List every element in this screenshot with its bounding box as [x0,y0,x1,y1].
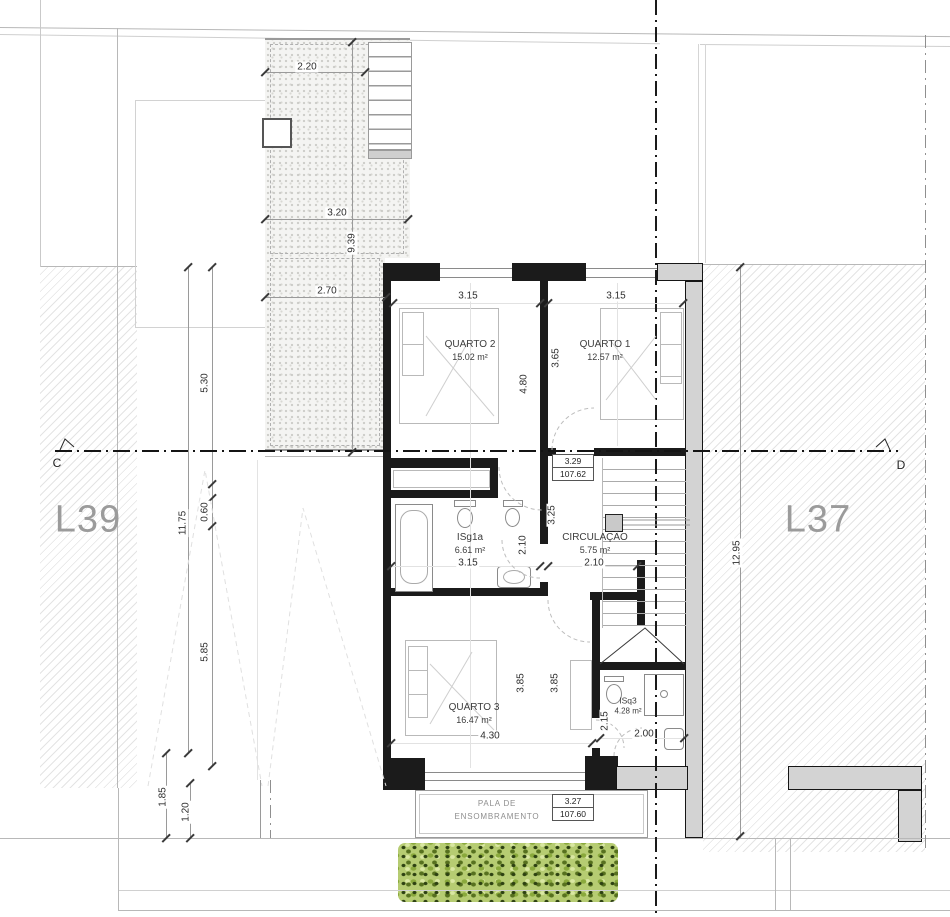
room-name: ISg1a [455,532,486,545]
dim-q1-height: 3.65 [551,346,562,369]
dim-q2-width: 3.15 [456,291,479,302]
level-value: 3.29 [553,455,593,468]
toilet-tank [454,500,476,507]
window-quarto1 [586,268,657,278]
sink-basin [503,570,525,584]
room-label-isq3: ISq3 4.28 m² [614,696,641,717]
dim-court-top: 2.20 [295,62,318,73]
bed-quarto2-pillows [402,312,424,376]
staircase-newel [605,514,623,532]
room-name: QUARTO 2 [445,339,496,352]
dim-q3-h2: 3.85 [550,671,561,694]
room-area: 15.02 m² [445,352,496,363]
dim-q3-h1: 3.85 [516,671,527,694]
wall-right-concrete [685,281,703,838]
neighbor-wall-horizontal [788,766,922,790]
dim-left-e: 1.20 [181,800,192,823]
section-marker-c: C [53,456,62,470]
dim-line [265,297,386,298]
pala-line2: ENSOMBRAMENTO [455,811,540,824]
hedge-vegetation [398,843,618,902]
window-quarto3 [425,772,585,781]
dim-line [548,303,683,304]
room-name: QUARTO 3 [449,702,500,715]
site-boundary-line [700,44,950,47]
right-boundary-centerline [925,35,926,852]
dim-line [617,283,618,446]
lot-l37-top-edge [703,264,925,265]
room-label-circulacao: CIRCULAÇÃO 5.75 m² [562,532,628,556]
room-name: ISq3 [614,696,641,707]
neighbor-wall-vertical [898,790,922,842]
wall-bottom-concrete [616,766,688,790]
site-line [790,838,791,910]
site-line [118,890,950,891]
wall-top-corner-concrete [657,263,703,281]
bed-quarto3-pillows [408,646,428,718]
bidet-bowl [505,508,520,527]
site-line [40,0,41,267]
pala-label: PALA DE ENSOMBRAMENTO [455,798,540,824]
site-line [117,28,118,788]
room-name: QUARTO 1 [580,339,631,352]
site-line [705,44,706,263]
room-area: 12.57 m² [580,352,631,363]
dim-isg-height: 2.10 [518,533,529,556]
lot-l39-top-edge [40,266,137,267]
wall-q2-q1 [540,281,548,498]
wall-q2-closet-a [383,458,498,468]
room-label-quarto1: QUARTO 1 12.57 m² [580,339,631,363]
wall-isq3-top [598,662,686,670]
wall-top-pier-mid [512,263,586,281]
dim-q2-height: 4.80 [519,372,530,395]
exterior-stair [368,42,412,150]
window-quarto2 [440,268,512,278]
wall-bottom-pier-left [383,758,425,790]
bathtub-inner [400,510,428,584]
site-line [118,910,950,911]
dim-left-a: 5.30 [200,371,211,394]
courtyard-planter [262,118,292,148]
room-area: 6.61 m² [455,545,486,556]
closet-niche [393,470,490,488]
site-line [260,780,261,838]
site-dashed-line [270,780,271,838]
dim-left-d: 1.85 [158,785,169,808]
room-area: 16.47 m² [449,715,500,726]
dim-line [212,267,213,766]
dim-court-mid: 3.20 [325,208,348,219]
site-line [118,788,119,910]
exterior-stair-landing [368,150,412,159]
wall-isg-top [391,490,490,498]
dim-isq3-height: 2.15 [600,709,611,732]
dim-line [265,219,408,220]
room-label-isg1a: ISg1a 6.61 m² [455,532,486,556]
dim-circ-width: 2.10 [582,558,605,569]
dim-line [391,743,592,744]
dim-q3-width: 4.30 [478,731,501,742]
site-line [257,460,258,780]
dim-hall-height: 3.25 [547,503,558,526]
level-value: 3.27 [553,795,593,808]
dim-left-total: 11.75 [178,509,189,537]
dim-right-total: 12.95 [732,538,743,567]
dim-court-low: 2.70 [315,286,338,297]
toilet-tank [604,676,624,682]
level-elevation: 107.62 [553,468,593,480]
site-line [775,838,776,910]
lot-label-l37: L37 [785,499,851,542]
wall-q3-right-b [592,748,600,772]
site-line [698,44,699,263]
level-elevation: 107.60 [553,808,593,820]
stair-direction-triangle [600,628,684,664]
room-name: CIRCULAÇÃO [562,532,628,545]
bed-quarto1-pillows [660,312,682,384]
wall-q2-closet-side [490,458,498,498]
pala-line1: PALA DE [455,798,540,811]
dim-left-c: 5.85 [200,640,211,663]
wall-top-pier-left [383,263,440,281]
section-marker-d: D [897,458,906,472]
lot-axis-centerline [655,0,657,917]
room-label-quarto2: QUARTO 2 15.02 m² [445,339,496,363]
dim-isg-width: 3.15 [456,558,479,569]
wall-bottom-pier-mid [585,756,618,790]
room-area: 4.28 m² [614,706,641,716]
lot-label-l39: L39 [55,499,121,542]
dim-line [393,303,540,304]
room-area: 5.75 m² [562,545,628,556]
desk-quarto3 [570,660,592,730]
site-line [0,838,950,839]
courtyard-low-wall-line [265,456,385,457]
shower-drain [660,690,668,698]
section-line-cd [55,450,898,452]
floor-plan-canvas: 2.20 3.20 9.39 2.70 5.30 11.75 0.60 5.85… [0,0,950,917]
dim-isq3-width: 2.00 [632,729,655,740]
bidet-tank [503,500,523,507]
dim-court-height: 9.39 [347,231,358,254]
wall-q3-right-a [592,596,600,718]
room-label-quarto3: QUARTO 3 16.47 m² [449,702,500,726]
wall-left [383,281,391,772]
dim-q1-width: 3.15 [604,291,627,302]
level-marker-pala: 3.27 107.60 [552,794,594,821]
level-marker-floor: 3.29 107.62 [552,454,594,481]
dim-left-b: 0.60 [200,500,211,523]
